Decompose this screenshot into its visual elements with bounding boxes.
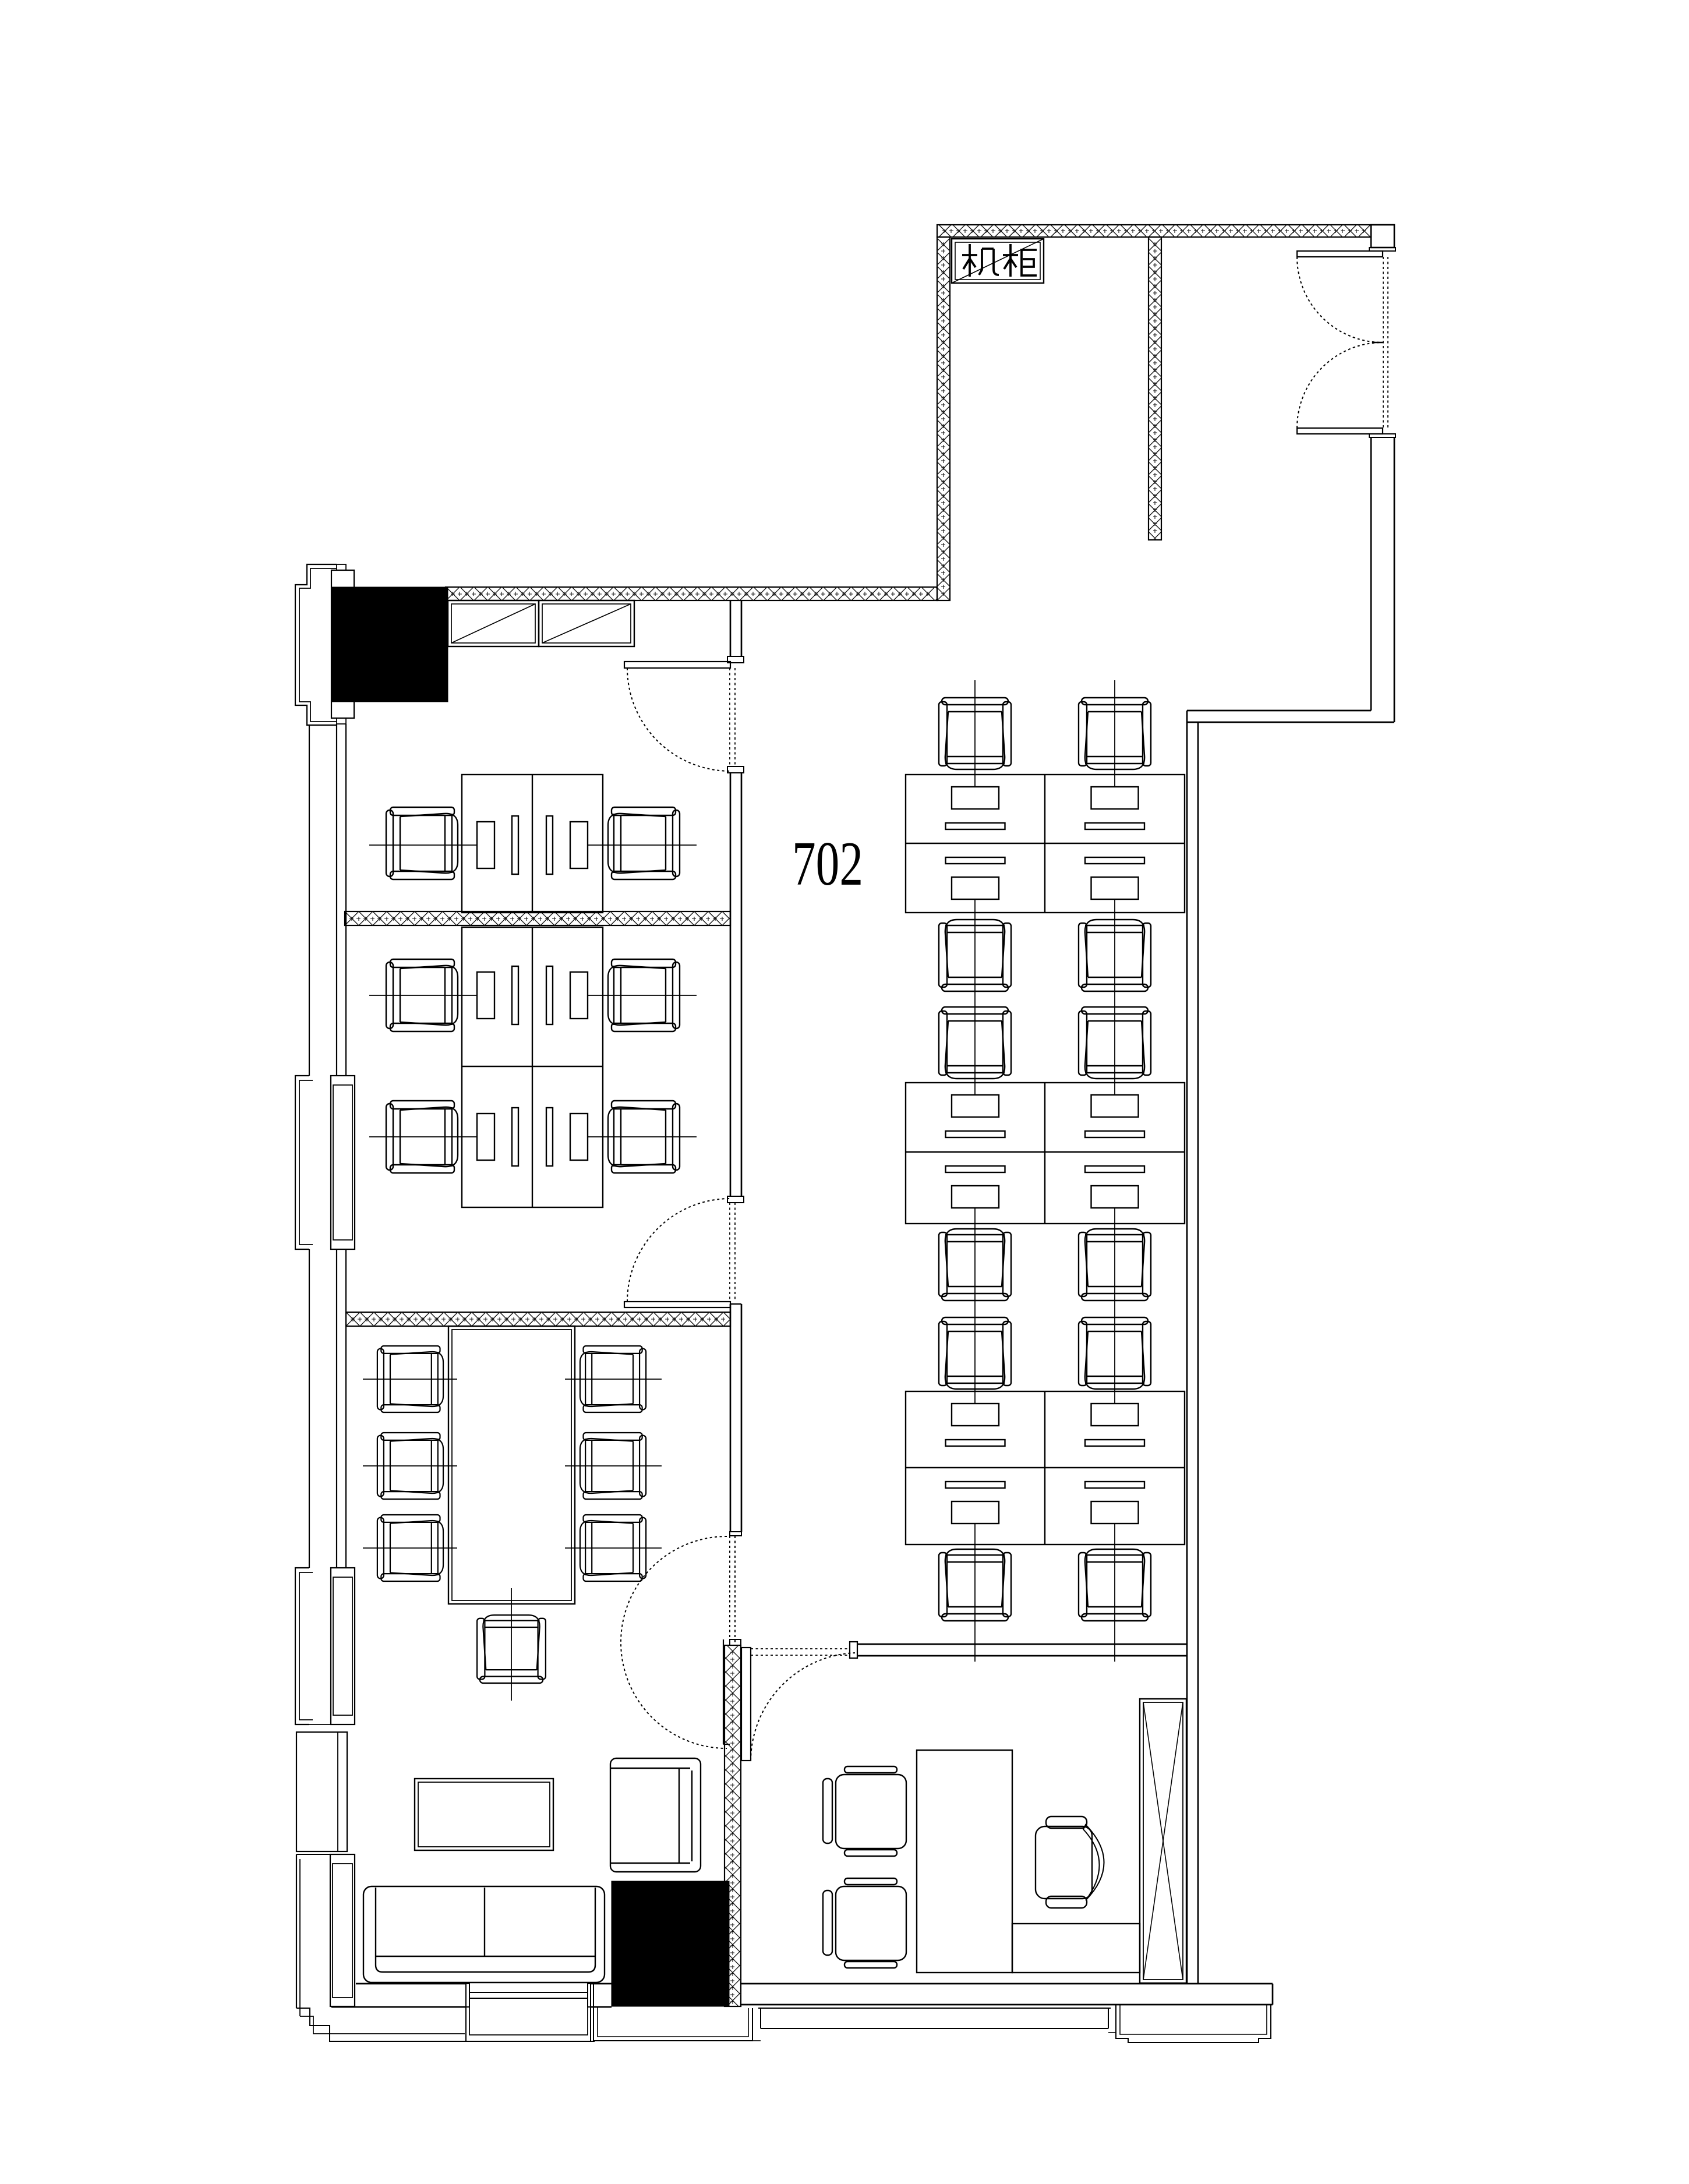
svg-text:702: 702 xyxy=(792,829,863,899)
